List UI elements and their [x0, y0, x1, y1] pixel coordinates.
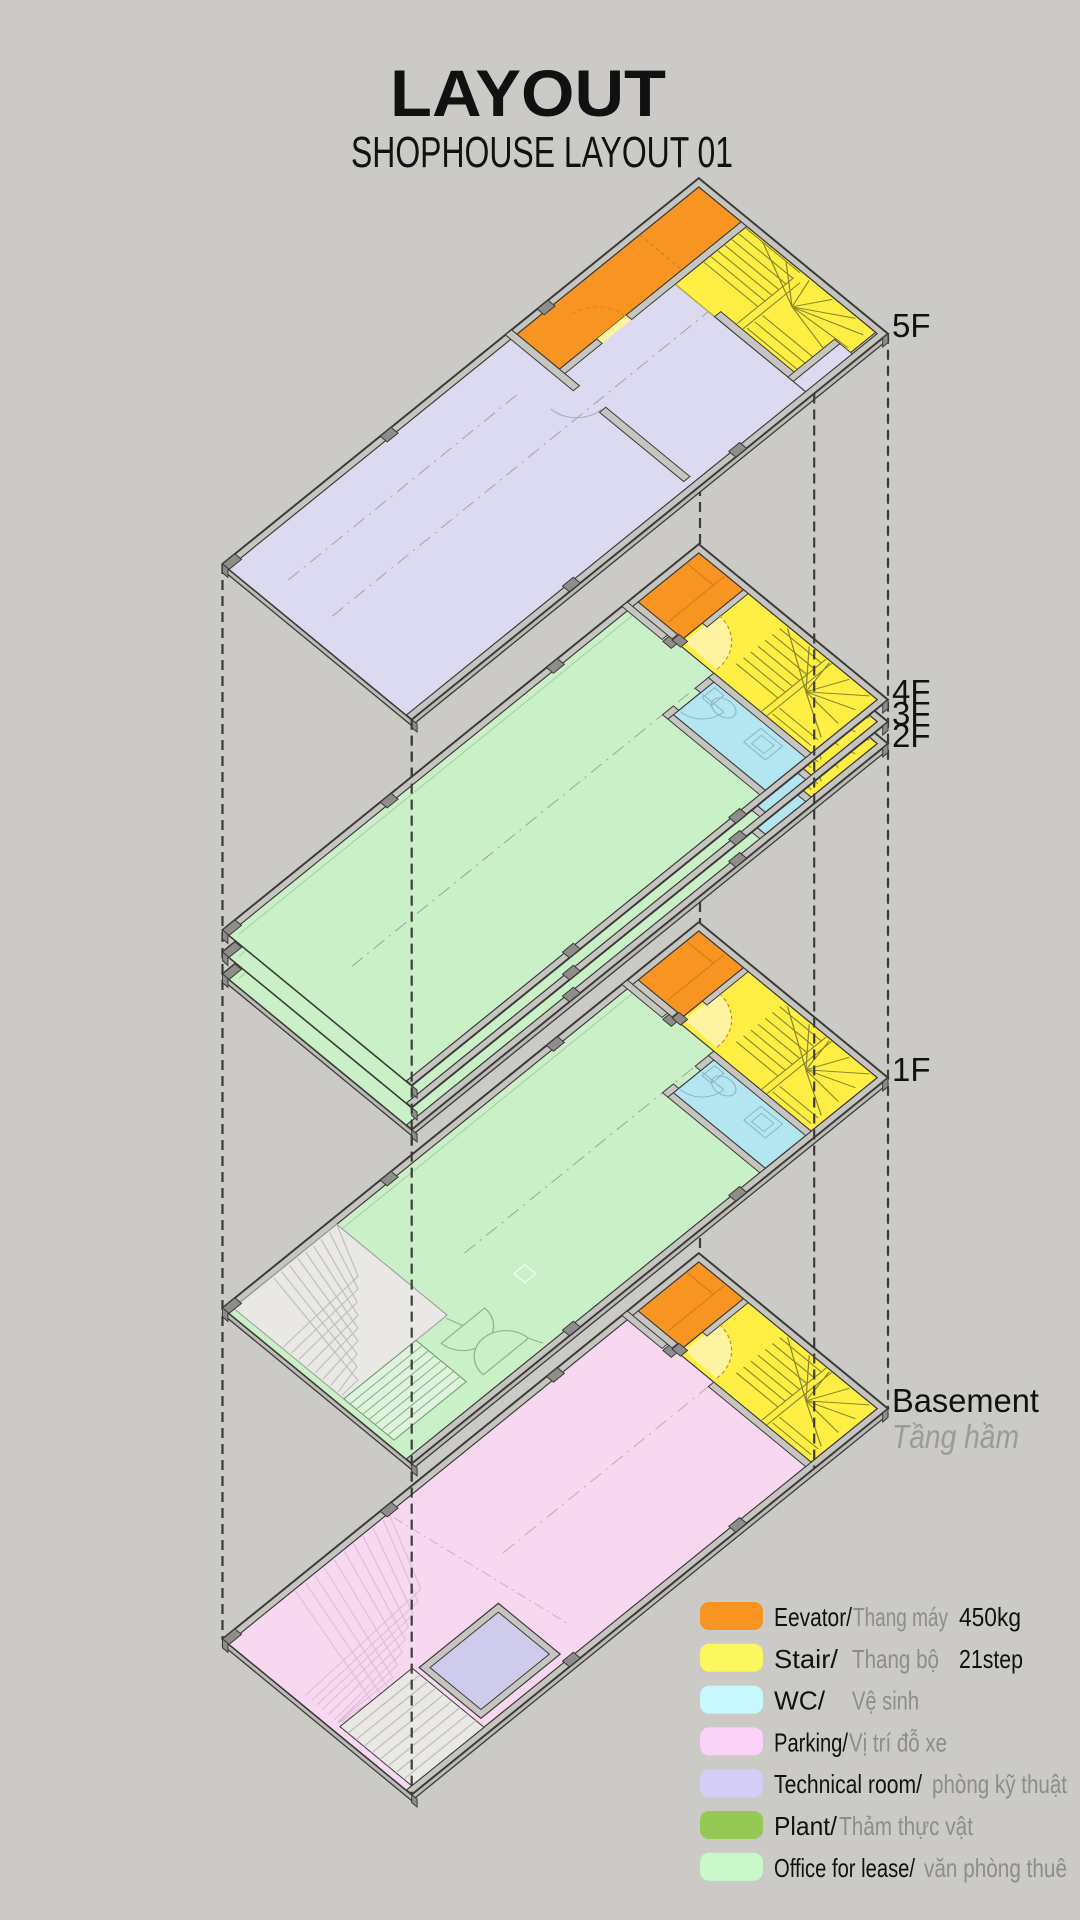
svg-text:Thang máy: Thang máy — [853, 1602, 948, 1632]
svg-text:Parking/: Parking/ — [774, 1727, 849, 1757]
svg-text:Basement: Basement — [892, 1382, 1039, 1419]
svg-text:Tầng hầm: Tầng hầm — [892, 1418, 1019, 1455]
svg-text:450kg: 450kg — [959, 1602, 1021, 1632]
svg-text:LAYOUT: LAYOUT — [390, 56, 666, 130]
svg-text:Plant/: Plant/ — [774, 1811, 838, 1841]
svg-text:Thang bộ: Thang bộ — [852, 1644, 939, 1674]
svg-text:2F: 2F — [892, 717, 931, 754]
svg-text:Vị trí đỗ xe: Vị trí đỗ xe — [849, 1727, 947, 1757]
svg-text:SHOPHOUSE LAYOUT 01: SHOPHOUSE LAYOUT 01 — [351, 128, 733, 177]
svg-text:Office for lease/: Office for lease/ — [774, 1853, 916, 1883]
svg-text:Technical room/: Technical room/ — [774, 1769, 923, 1799]
svg-text:WC/: WC/ — [774, 1686, 826, 1716]
svg-text:Thảm thực vật: Thảm thực vật — [839, 1811, 974, 1841]
svg-text:văn phòng thuê: văn phòng thuê — [924, 1853, 1067, 1883]
svg-text:phòng kỹ thuật: phòng kỹ thuật — [932, 1769, 1068, 1799]
svg-text:Stair/: Stair/ — [774, 1644, 839, 1674]
svg-text:Vệ sinh: Vệ sinh — [852, 1686, 919, 1716]
svg-text:5F: 5F — [892, 307, 931, 344]
svg-text:1F: 1F — [892, 1051, 931, 1088]
svg-text:Eevator/: Eevator/ — [774, 1602, 853, 1632]
svg-text:21step: 21step — [959, 1644, 1023, 1674]
